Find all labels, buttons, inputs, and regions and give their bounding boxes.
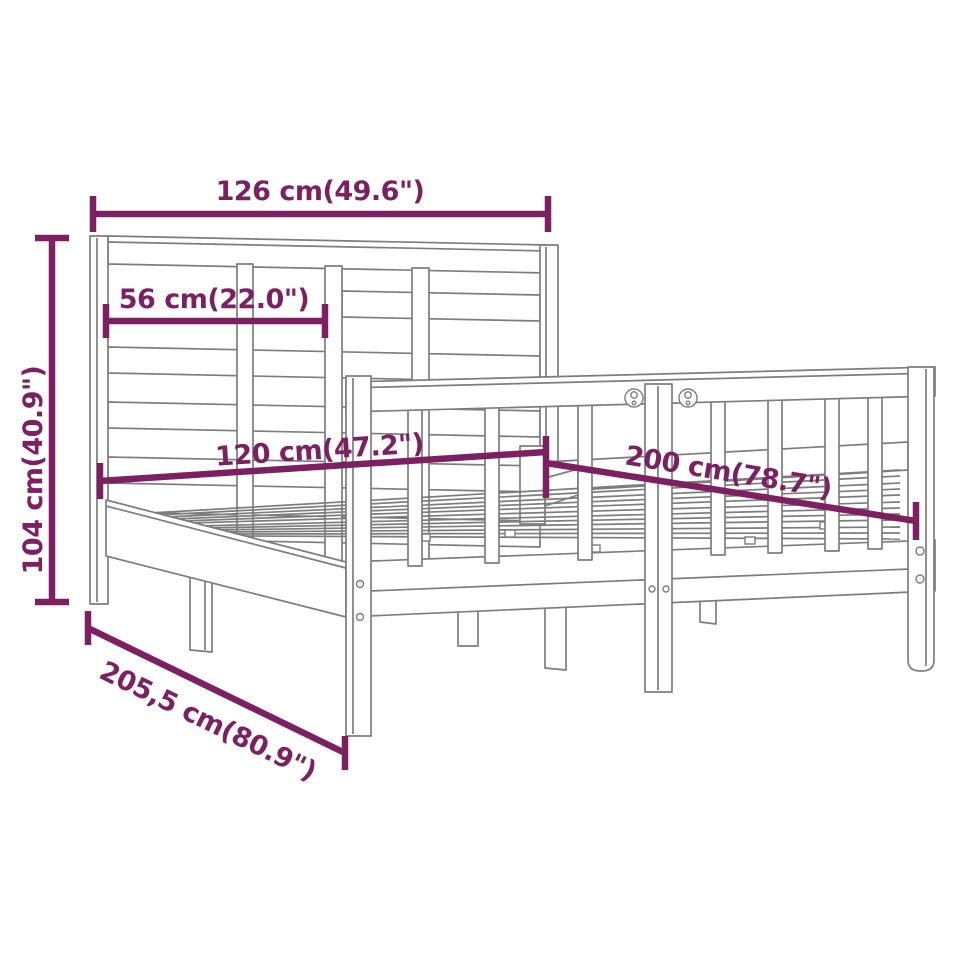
dim-label-slat-span: 56 cm(22.0")	[119, 284, 309, 315]
dim-label-headboard-width: 126 cm(49.6")	[216, 176, 425, 207]
bed-frame-drawing: 126 cm(49.6") 56 cm(22.0") 104 cm(40.9")…	[0, 0, 955, 955]
dimension-slat-span: 56 cm(22.0")	[106, 284, 325, 338]
dimension-headboard-width: 126 cm(49.6")	[93, 176, 548, 232]
front-base-rail	[346, 540, 935, 617]
left-corner-post	[346, 376, 371, 736]
dim-label-headboard-height: 104 cm(40.9")	[18, 366, 49, 575]
headboard-slat	[108, 347, 540, 382]
dimension-headboard-height: 104 cm(40.9")	[18, 238, 69, 602]
dimension-overall-length: 205,5 cm(80.9")	[88, 611, 345, 787]
dimension-diagram: 126 cm(49.6") 56 cm(22.0") 104 cm(40.9")…	[0, 0, 955, 955]
